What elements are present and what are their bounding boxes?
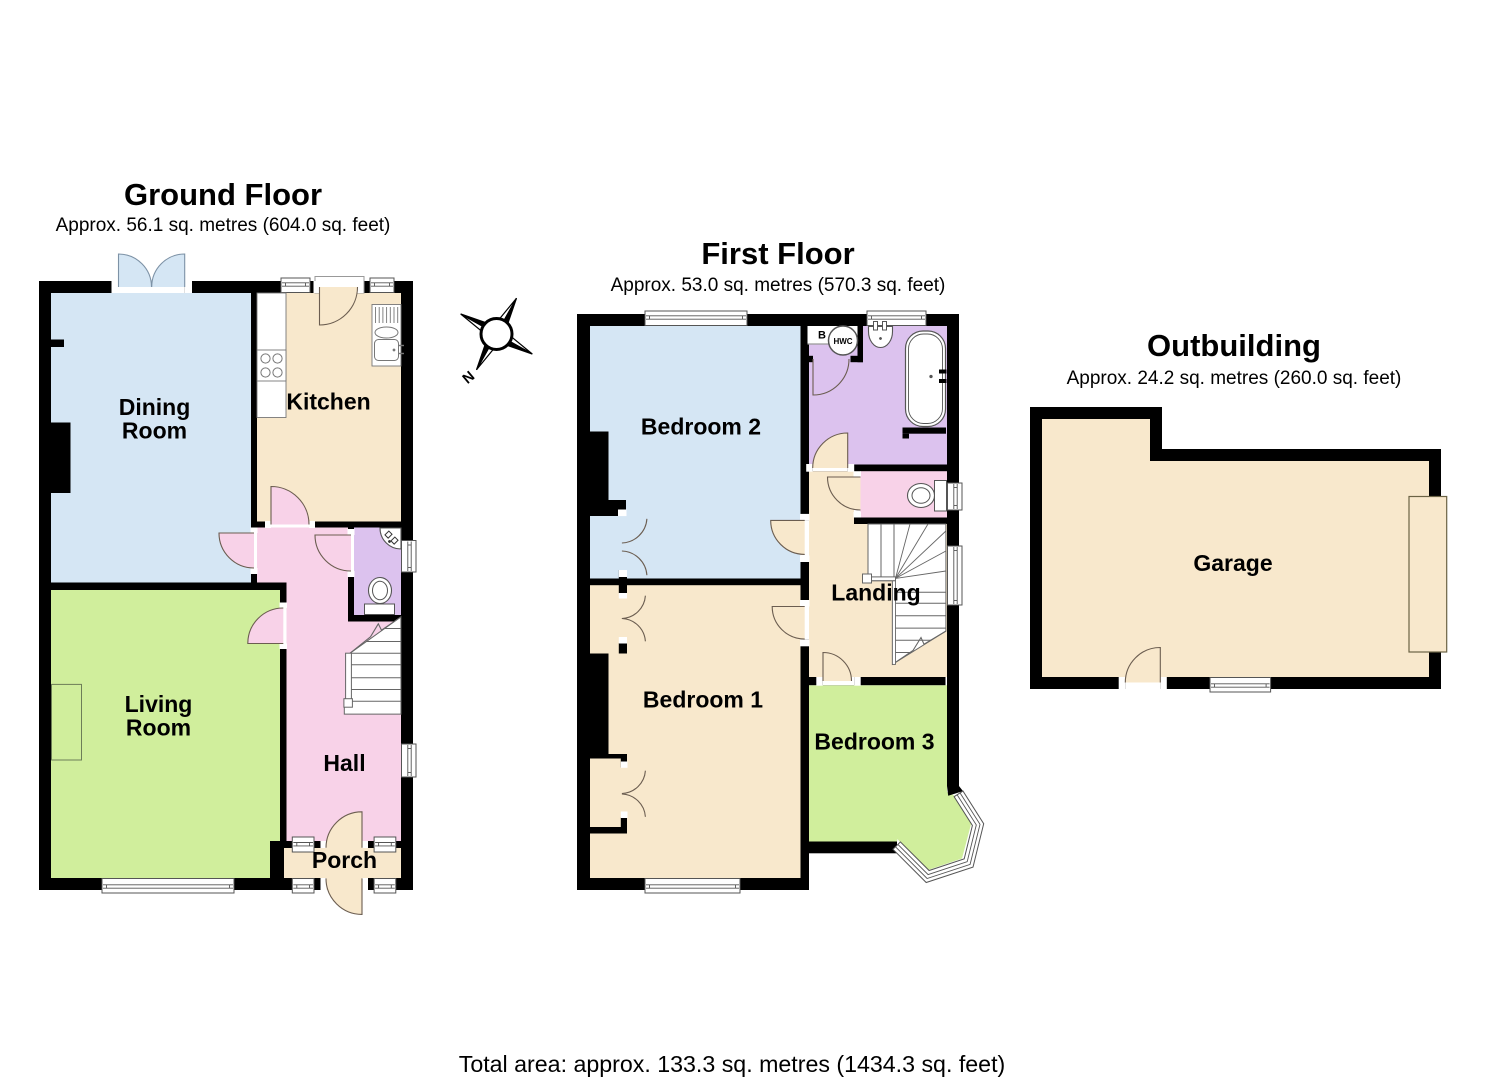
svg-text:HWC: HWC [833,337,852,346]
svg-text:Kitchen: Kitchen [286,389,370,415]
svg-text:Outbuilding: Outbuilding [1147,328,1321,363]
svg-text:Total area: approx. 133.3 sq.: Total area: approx. 133.3 sq. metres (14… [459,1051,1006,1077]
svg-text:First Floor: First Floor [701,236,854,271]
svg-text:Porch: Porch [312,847,377,873]
svg-text:Living: Living [125,691,193,717]
svg-text:Ground Floor: Ground Floor [124,177,322,212]
svg-text:Room: Room [126,715,191,741]
svg-text:Bedroom 1: Bedroom 1 [643,687,763,713]
svg-text:Approx. 24.2 sq. metres (260.0: Approx. 24.2 sq. metres (260.0 sq. feet) [1067,368,1402,389]
svg-text:Landing: Landing [831,580,920,606]
svg-text:Dining: Dining [119,394,191,420]
svg-text:Hall: Hall [323,750,365,776]
svg-text:B: B [818,330,826,342]
svg-text:N: N [460,368,478,387]
svg-text:Garage: Garage [1193,550,1272,576]
svg-text:Bedroom 2: Bedroom 2 [641,414,761,440]
svg-text:Approx. 56.1 sq. metres (604.0: Approx. 56.1 sq. metres (604.0 sq. feet) [56,215,391,236]
svg-text:Approx. 53.0 sq. metres (570.3: Approx. 53.0 sq. metres (570.3 sq. feet) [611,275,946,296]
svg-text:Bedroom 3: Bedroom 3 [814,729,934,755]
svg-text:Room: Room [122,418,187,444]
